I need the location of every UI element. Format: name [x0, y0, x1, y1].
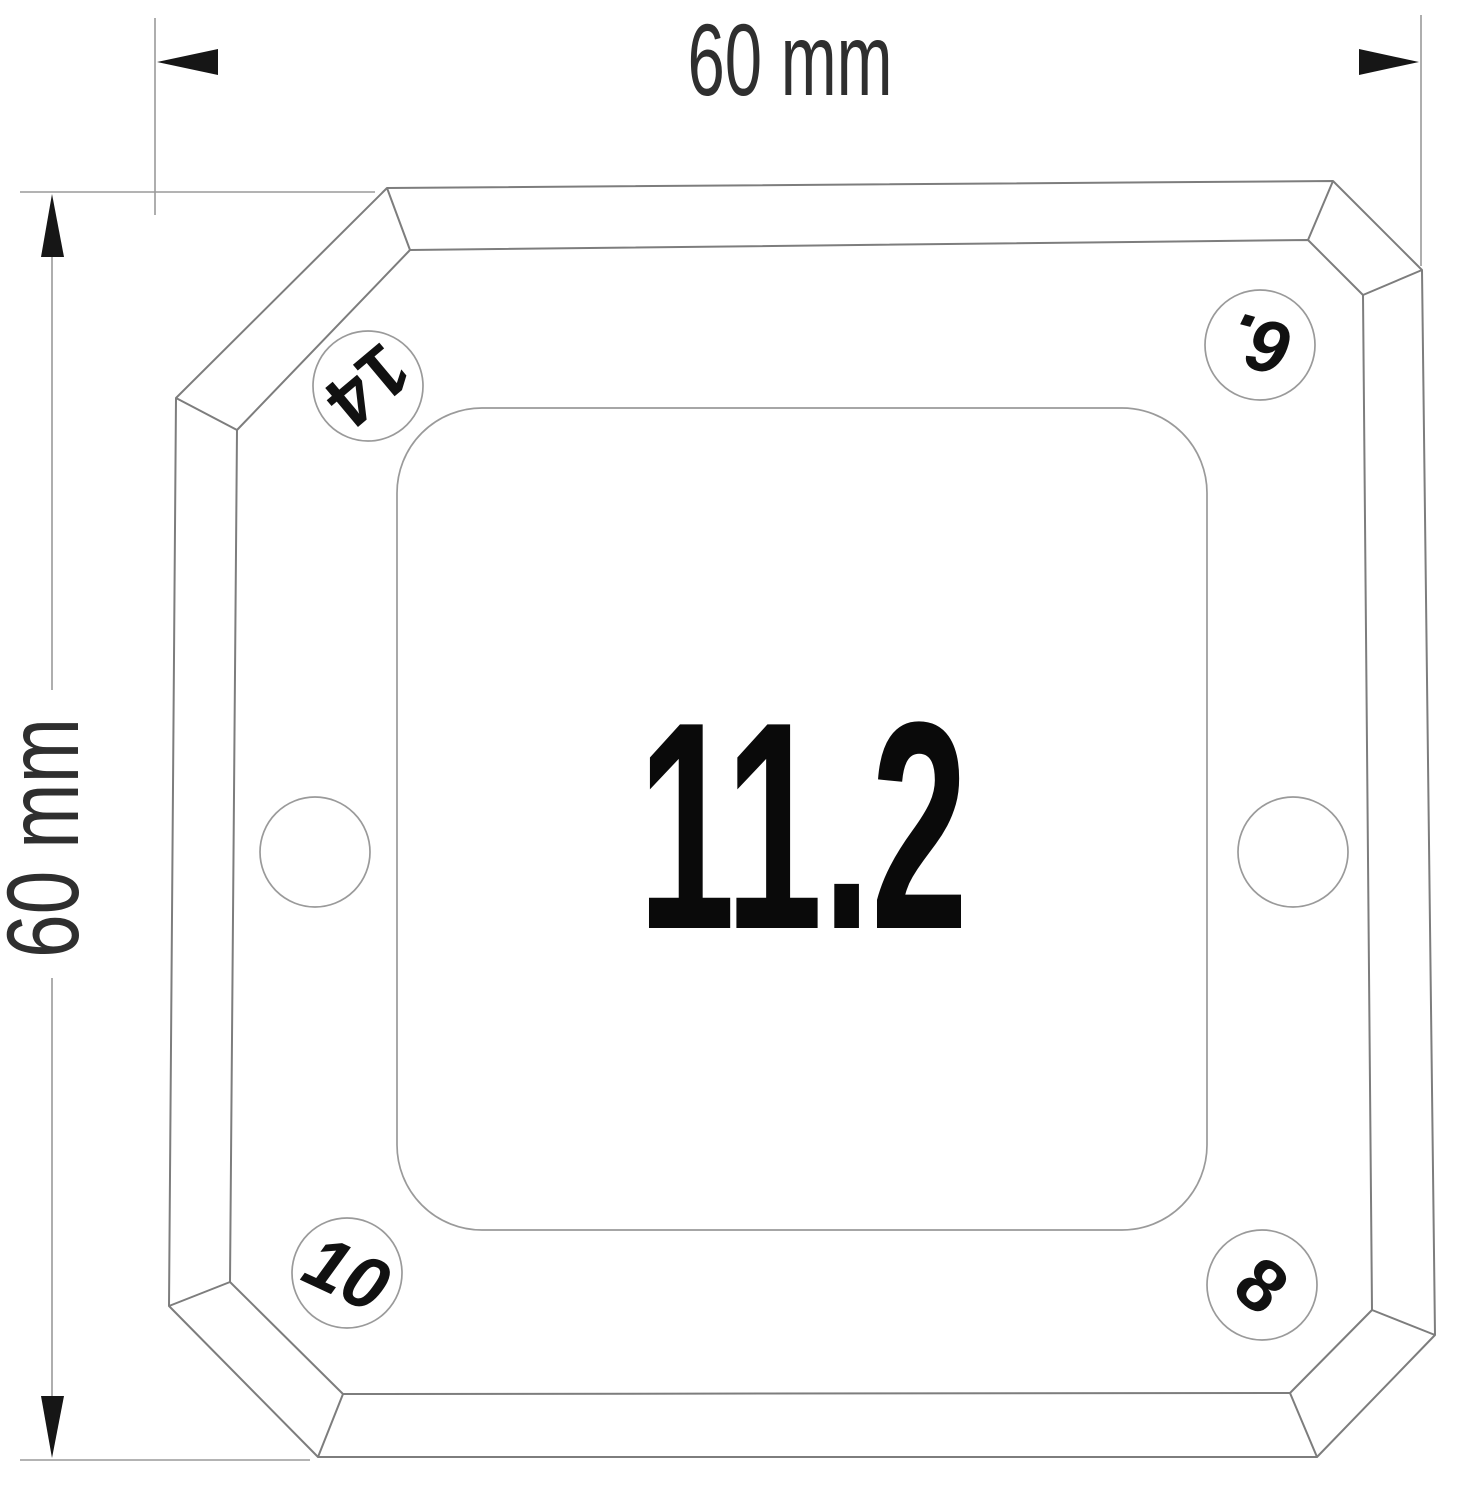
hole-circle-mid-right — [1238, 797, 1348, 907]
hole-circle-mid-left — [260, 797, 370, 907]
hole-label-top-right: 6. — [1220, 296, 1301, 392]
hole-label-top-left: 14 — [309, 327, 425, 443]
technical-drawing-page: 60 mm 60 mm 14 6. 10 8 11.2 — [0, 0, 1459, 1500]
left-dim-arrowhead-bottom-icon — [41, 1396, 64, 1458]
top-dim-arrowhead-left-icon — [157, 49, 218, 75]
center-value-label: 11.2 — [638, 660, 968, 991]
left-dim-arrowhead-top-icon — [41, 194, 64, 257]
drawing-canvas: 60 mm 60 mm 14 6. 10 8 11.2 — [0, 0, 1459, 1500]
top-dimension-label: 60 mm — [688, 3, 893, 117]
left-dimension-label: 60 mm — [0, 718, 100, 958]
hole-label-bottom-right: 8 — [1219, 1240, 1304, 1330]
top-dim-arrowhead-right-icon — [1359, 49, 1419, 75]
